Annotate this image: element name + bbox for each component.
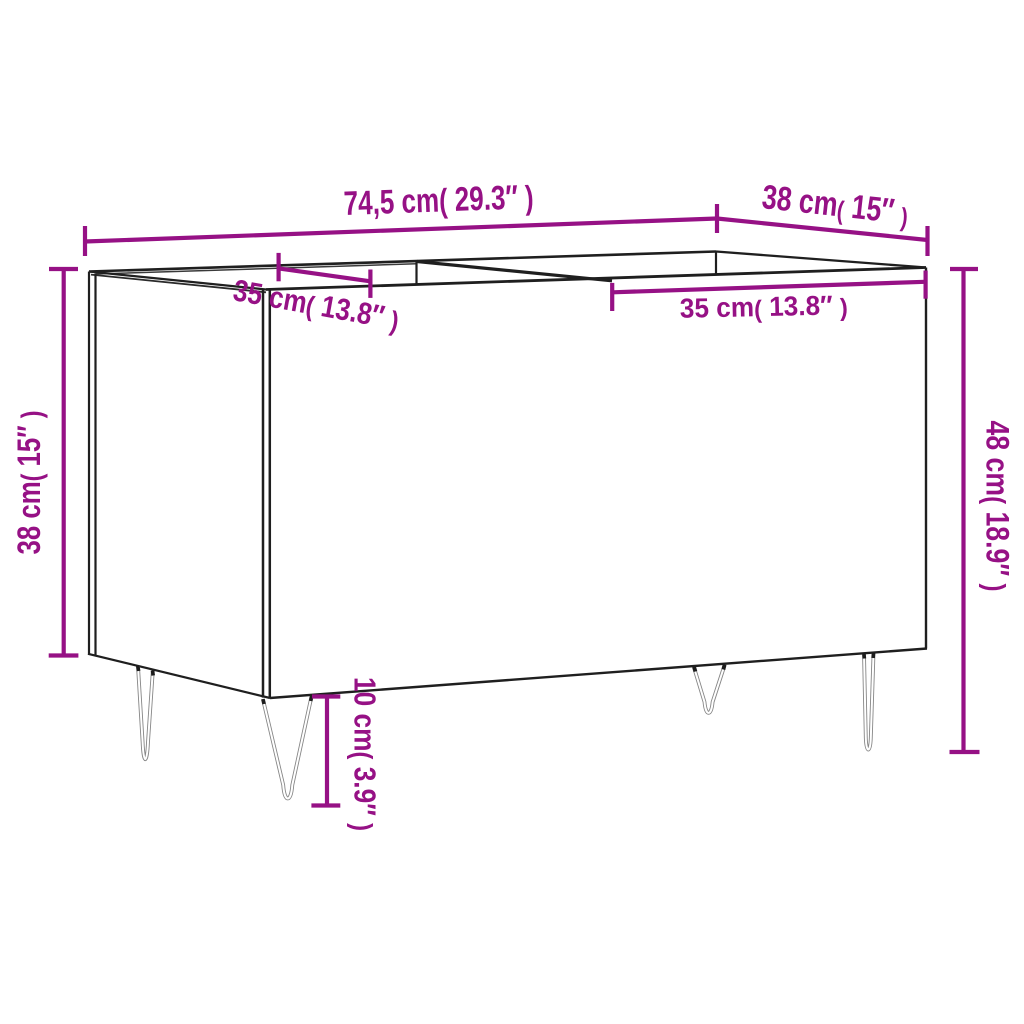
svg-text:38 cm( 15″ ): 38 cm( 15″ )	[11, 411, 49, 555]
svg-text:10 cm( 3.9″ ): 10 cm( 3.9″ )	[347, 677, 383, 831]
svg-text:74,5 cm( 29.3″ ): 74,5 cm( 29.3″ )	[343, 178, 534, 223]
svg-text:48 cm( 18.9″ ): 48 cm( 18.9″ )	[978, 421, 1016, 592]
svg-text:35 cm( 13.8″ ): 35 cm( 13.8″ )	[679, 289, 848, 325]
